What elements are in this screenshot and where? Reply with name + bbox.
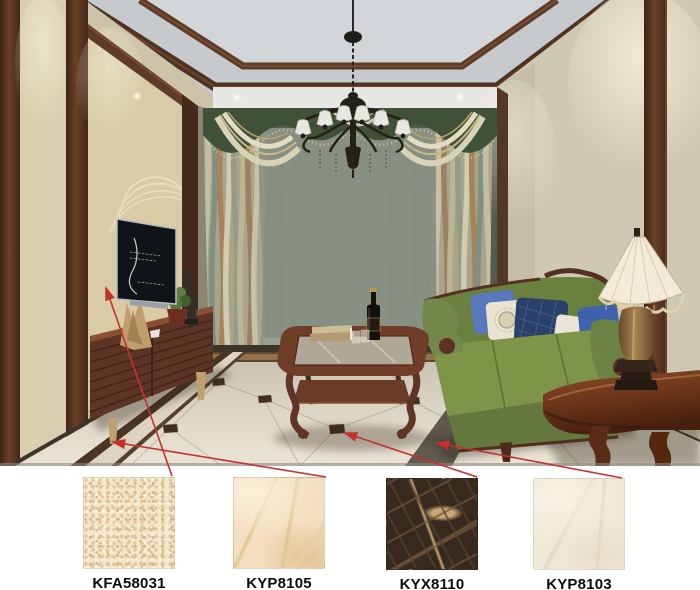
tile-showcase: KFA58031 KYP8105 KYX8110 KYP8103 [0, 0, 700, 590]
room-render [0, 0, 700, 466]
books [310, 325, 354, 341]
lamp-body [619, 307, 656, 364]
tv-screen [117, 219, 176, 309]
tile-swatch-kyx8110 [386, 478, 478, 570]
tile-code-label: KFA58031 [83, 575, 175, 590]
tile-code-label: KYX8110 [386, 576, 478, 590]
tile-code-label: KYP8105 [233, 575, 325, 590]
lamp-base [614, 360, 658, 372]
tile-swatch-kyp8103 [533, 478, 625, 570]
tile-code-label: KYP8103 [533, 576, 625, 590]
tile-swatch-kfa58031 [83, 477, 175, 569]
photo-bottom-edge [0, 463, 700, 466]
tile-swatch-kyp8105 [233, 477, 325, 569]
